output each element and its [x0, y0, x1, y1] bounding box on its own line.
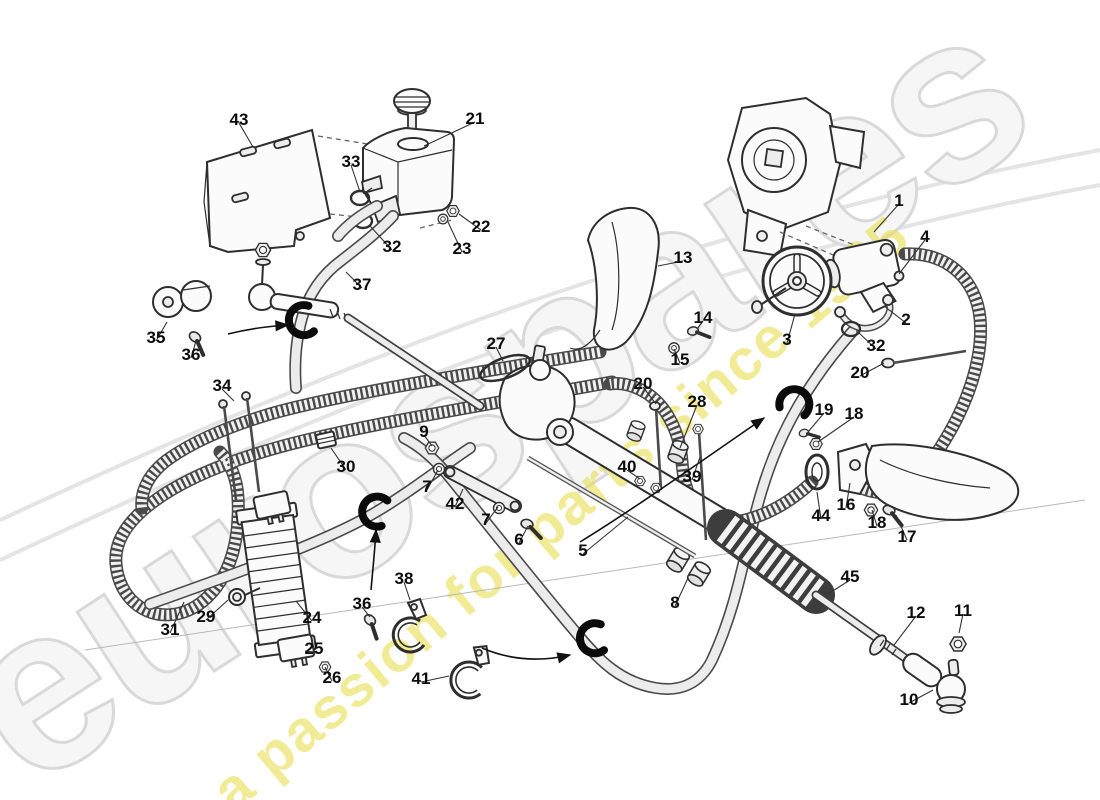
- callout-18: 18: [868, 513, 887, 532]
- callout-15: 15: [671, 350, 690, 369]
- callout-9: 9: [419, 422, 428, 441]
- callout-29: 29: [197, 607, 216, 626]
- callout-43: 43: [230, 110, 249, 129]
- callout-7: 7: [481, 510, 490, 529]
- nut-9: [425, 442, 439, 454]
- callout-37: 37: [353, 275, 372, 294]
- washer-7-lower: [493, 502, 504, 513]
- callout-5: 5: [578, 541, 587, 560]
- nut-22: [447, 206, 460, 217]
- callout-3: 3: [782, 330, 791, 349]
- pulley-bolt-head: [752, 301, 762, 313]
- callout-33: 33: [342, 152, 361, 171]
- callout-25: 25: [305, 639, 324, 658]
- callout-39: 39: [683, 467, 702, 486]
- rack-mount-boss-b: [686, 560, 712, 588]
- callout-41: 41: [412, 669, 431, 688]
- callout-14: 14: [694, 308, 713, 327]
- callout-11: 11: [954, 601, 972, 620]
- callout-36: 36: [353, 594, 372, 613]
- clamp-fork-35: [153, 281, 211, 317]
- callout-12: 12: [907, 603, 926, 622]
- callout-2: 2: [901, 310, 910, 329]
- callout-6: 6: [514, 530, 523, 549]
- callout-40: 40: [618, 457, 637, 476]
- callout-23: 23: [453, 239, 472, 258]
- callout-36: 36: [182, 345, 201, 364]
- banjo-fitting-2b: [883, 295, 893, 305]
- banjo-fitting-2a: [835, 307, 845, 317]
- callout-34: 34: [213, 376, 232, 395]
- callout-32: 32: [383, 237, 402, 256]
- hose-clamp-33: [351, 188, 372, 205]
- callout-16: 16: [837, 495, 856, 514]
- callout-10: 10: [900, 690, 919, 709]
- washer-7-upper: [433, 463, 444, 474]
- washer-23: [438, 214, 448, 224]
- stud-4: [895, 272, 904, 281]
- callout-26: 26: [323, 668, 342, 687]
- callout-17: 17: [898, 527, 917, 546]
- callout-30: 30: [337, 457, 356, 476]
- callout-7: 7: [422, 477, 431, 496]
- nut-40-b: [651, 483, 662, 492]
- callout-31: 31: [161, 620, 180, 639]
- callout-13: 13: [674, 248, 693, 267]
- nut-40-a: [635, 476, 646, 485]
- callout-19: 19: [815, 400, 834, 419]
- parts-diagram-page: eurospares a passion for parts since 198…: [0, 0, 1100, 800]
- callout-42: 42: [446, 494, 465, 513]
- callout-1: 1: [894, 191, 903, 210]
- callout-35: 35: [147, 328, 166, 347]
- callout-21: 21: [466, 109, 485, 128]
- callout-27: 27: [487, 334, 506, 353]
- callout-45: 45: [841, 567, 860, 586]
- callout-22: 22: [472, 217, 491, 236]
- callout-18: 18: [845, 404, 864, 423]
- callout-44: 44: [812, 506, 831, 525]
- locknut-11: [950, 637, 966, 651]
- callout-4: 4: [920, 227, 930, 246]
- callout-20: 20: [851, 363, 870, 382]
- hose-guide-clip-30: [316, 431, 337, 448]
- callout-38: 38: [395, 569, 414, 588]
- callout-28: 28: [688, 392, 707, 411]
- pointer-arrow-1: [228, 325, 288, 334]
- callout-8: 8: [670, 593, 679, 612]
- hose-clip-3: [579, 623, 604, 655]
- callout-24: 24: [303, 608, 322, 627]
- callout-20: 20: [634, 374, 653, 393]
- parts-diagram-canvas: eurospares a passion for parts since 198…: [0, 0, 1100, 800]
- pointer-arrow-3: [482, 648, 570, 659]
- callout-32: 32: [867, 336, 886, 355]
